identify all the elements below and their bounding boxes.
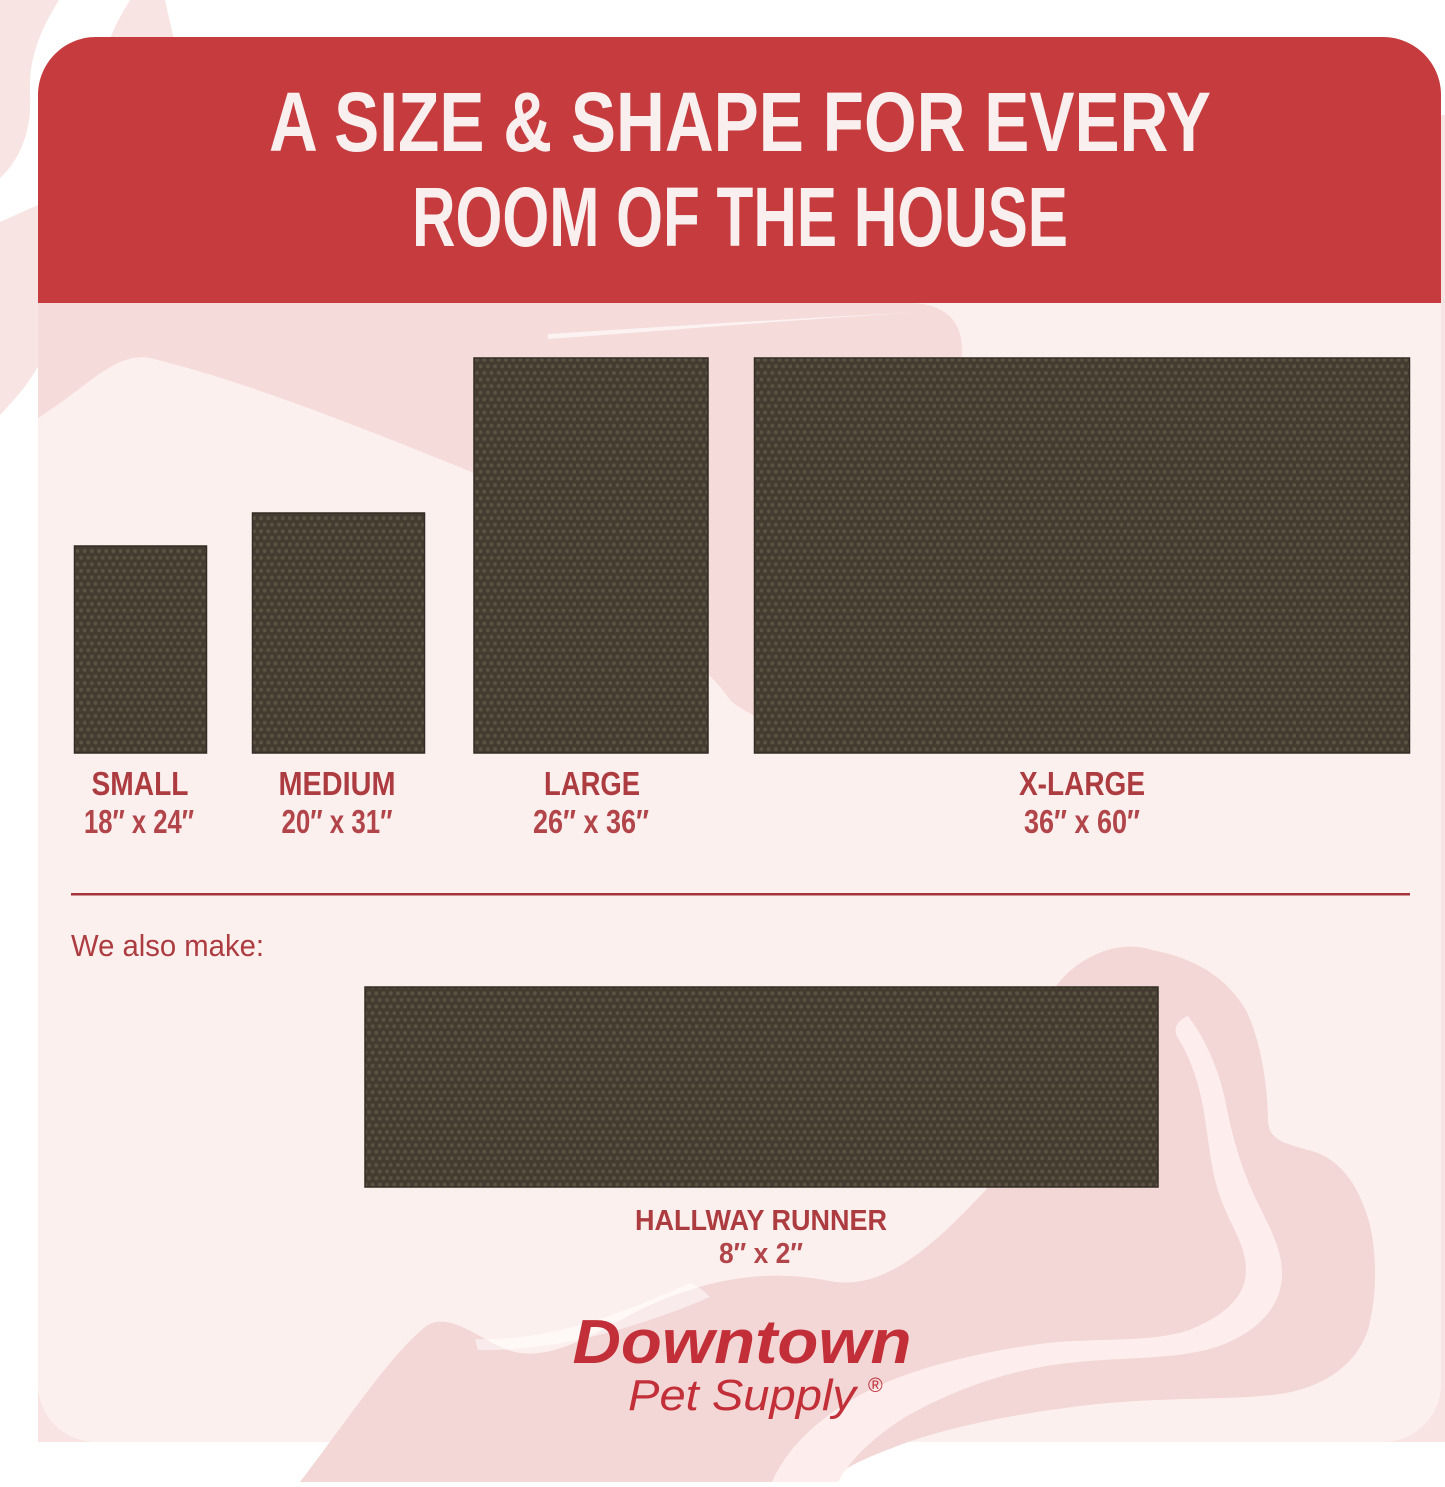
svg-text:ROOM OF THE HOUSE: ROOM OF THE HOUSE: [412, 170, 1068, 264]
svg-text:SMALL: SMALL: [92, 765, 189, 802]
svg-text:HALLWAY RUNNER: HALLWAY RUNNER: [635, 1205, 887, 1237]
svg-text:Pet Supply: Pet Supply: [628, 1371, 859, 1420]
svg-text:8″ x 2″: 8″ x 2″: [719, 1238, 803, 1270]
svg-text:26″ x 36″: 26″ x 36″: [533, 803, 649, 840]
svg-text:18″ x 24″: 18″ x 24″: [84, 803, 194, 840]
svg-text:X-LARGE: X-LARGE: [1019, 765, 1145, 802]
svg-text:LARGE: LARGE: [544, 765, 640, 802]
svg-text:We also make:: We also make:: [71, 928, 264, 963]
svg-text:20″ x 31″: 20″ x 31″: [282, 803, 393, 840]
svg-text:36″ x 60″: 36″ x 60″: [1024, 803, 1140, 840]
svg-text:A SIZE & SHAPE FOR EVERY: A SIZE & SHAPE FOR EVERY: [269, 75, 1211, 169]
svg-text:Downtown: Downtown: [573, 1308, 912, 1377]
svg-text:MEDIUM: MEDIUM: [279, 765, 396, 802]
svg-text:®: ®: [868, 1375, 883, 1397]
